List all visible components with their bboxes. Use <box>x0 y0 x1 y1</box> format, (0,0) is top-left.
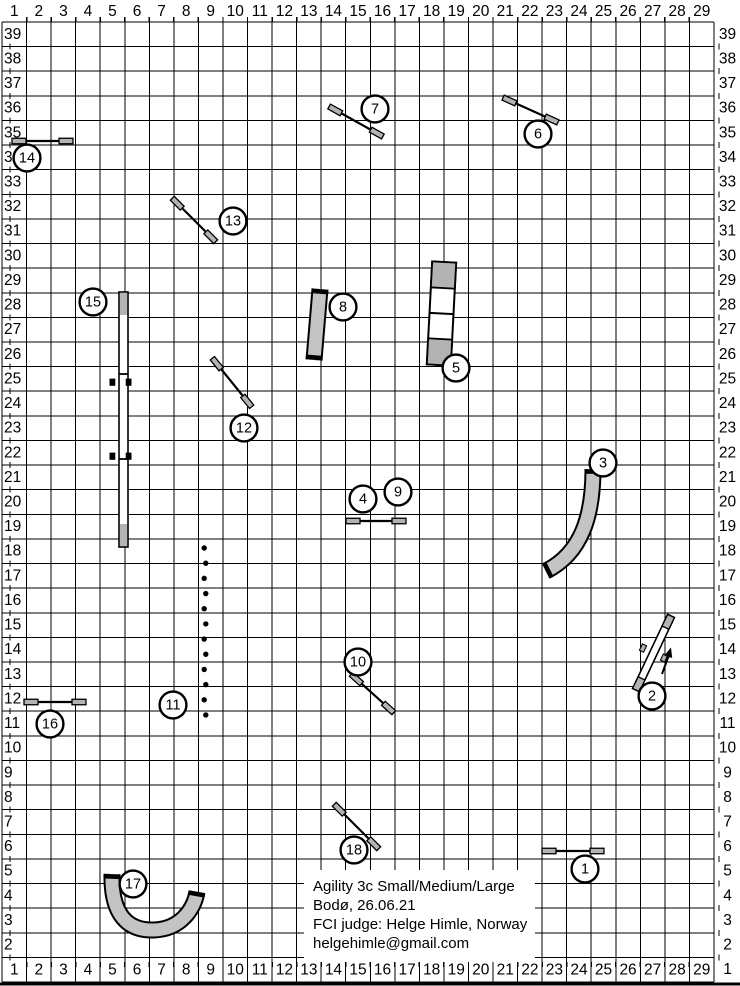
ruler-label: 1 <box>10 962 19 979</box>
weave-pole <box>203 652 208 657</box>
ruler-label: 20 <box>4 494 22 511</box>
obstacle-number-9: 9 <box>385 479 412 506</box>
ruler-label: 19 <box>448 3 465 20</box>
obstacle-number-1: 1 <box>572 856 599 883</box>
ruler-label: 30 <box>719 247 737 264</box>
ruler-label: 4 <box>723 887 732 904</box>
a-frame-apex <box>430 313 454 314</box>
ruler-label: 7 <box>4 814 13 831</box>
ruler-label: 31 <box>719 223 736 240</box>
ruler-label: 5 <box>4 863 13 880</box>
obstacle-jump-13 <box>170 196 217 243</box>
ruler-label: 3 <box>59 3 68 20</box>
ruler-label: 2 <box>35 3 44 20</box>
weave-pole <box>203 591 208 596</box>
obstacle-number-6: 6 <box>525 121 552 148</box>
obstacle-number-label: 1 <box>581 862 589 878</box>
obstacle-number-8: 8 <box>330 294 357 321</box>
ruler-label: 6 <box>4 838 13 855</box>
ruler-label: 29 <box>4 272 21 289</box>
ruler-label: 16 <box>374 3 391 20</box>
jump-wing <box>502 95 517 106</box>
ruler-label: 22 <box>4 444 21 461</box>
ruler-label: 24 <box>719 395 737 412</box>
obstacle-number-label: 13 <box>225 214 241 230</box>
obstacle-number-7: 7 <box>362 96 389 123</box>
ruler-label: 28 <box>719 297 736 314</box>
ruler-label: 17 <box>398 3 415 20</box>
ruler-label: 32 <box>4 198 21 215</box>
jump-wing <box>392 518 406 524</box>
ruler-label: 37 <box>4 75 21 92</box>
ruler-label: 16 <box>374 962 391 979</box>
ruler-label: 1 <box>10 3 19 20</box>
ruler-label: 10 <box>227 962 245 979</box>
jump-wing <box>170 196 184 210</box>
ruler-label: 7 <box>157 962 166 979</box>
weave-pole <box>203 682 208 687</box>
ruler-label: 20 <box>719 494 737 511</box>
ruler-label: 9 <box>206 962 215 979</box>
ruler-label: 29 <box>693 3 710 20</box>
dog-walk-contact-top <box>120 293 127 315</box>
ruler-label: 7 <box>157 3 166 20</box>
ruler-label: 22 <box>521 3 538 20</box>
info-line-event: Agility 3c Small/Medium/Large <box>313 877 535 896</box>
ruler-label: 24 <box>4 395 22 412</box>
ruler-label: 38 <box>719 50 736 67</box>
obstacle-tunnel-8 <box>306 289 329 361</box>
info-line-place-date: Bodø, 26.06.21 <box>313 896 535 915</box>
obstacle-number-3: 3 <box>590 450 617 477</box>
tunnel-body <box>314 289 320 360</box>
ruler-label: 8 <box>723 789 732 806</box>
jump-wing <box>382 701 396 714</box>
obstacle-number-13: 13 <box>220 208 247 235</box>
obstacle-number-label: 5 <box>452 361 460 377</box>
weave-pole <box>202 606 207 611</box>
ruler-label: 22 <box>719 444 736 461</box>
obstacle-dog-walk <box>110 292 132 547</box>
ruler-label: 13 <box>300 962 317 979</box>
ruler-label: 21 <box>497 962 514 979</box>
ruler-label: 27 <box>719 321 736 338</box>
ruler-label: 11 <box>252 3 268 20</box>
ruler-label: 25 <box>4 370 21 387</box>
obstacle-number-label: 18 <box>346 843 362 859</box>
ruler-label: 14 <box>325 3 343 20</box>
ruler-label: 6 <box>723 838 732 855</box>
ruler-label: 13 <box>4 666 21 683</box>
obstacle-number-label: 15 <box>85 295 101 311</box>
ruler-label: 21 <box>4 469 21 486</box>
obstacle-jump-10 <box>349 672 395 714</box>
a-frame-contact-top <box>431 261 456 288</box>
ruler-label: 6 <box>133 962 142 979</box>
jump-wing <box>590 848 604 854</box>
ruler-label: 37 <box>719 75 736 92</box>
ruler-label: 16 <box>719 592 736 609</box>
ruler-label: 29 <box>693 962 710 979</box>
jump-wing <box>59 138 73 144</box>
ruler-label: 27 <box>644 3 661 20</box>
ruler-label: 24 <box>570 962 588 979</box>
obstacle-number-label: 11 <box>165 698 180 714</box>
ruler-label: 2 <box>4 937 13 954</box>
obstacle-jump-1 <box>542 848 604 854</box>
jump-wing <box>210 356 223 370</box>
obstacle-number-label: 2 <box>648 689 656 705</box>
ruler-label: 21 <box>497 3 514 20</box>
ruler-label: 17 <box>398 962 415 979</box>
weave-pole <box>203 621 208 626</box>
ruler-label: 19 <box>448 962 465 979</box>
ruler-label: 18 <box>423 962 440 979</box>
obstacle-jump-4-9 <box>346 518 406 524</box>
ruler-label: 39 <box>4 26 21 43</box>
obstacle-number-label: 8 <box>339 300 347 316</box>
ruler-label: 8 <box>182 962 191 979</box>
obstacle-jump-14 <box>12 138 73 144</box>
ruler-label: 19 <box>4 518 21 535</box>
obstacle-number-label: 7 <box>371 102 379 118</box>
dog-walk-support <box>126 453 132 460</box>
course-info-box: Agility 3c Small/Medium/Large Bodø, 26.0… <box>304 870 535 962</box>
obstacle-number-label: 6 <box>534 127 542 143</box>
obstacle-number-label: 17 <box>125 877 141 893</box>
ruler-label: 13 <box>300 3 317 20</box>
obstacle-number-label: 4 <box>359 492 367 508</box>
ruler-label: 17 <box>4 567 21 584</box>
obstacle-number-4: 4 <box>350 486 377 513</box>
agility-course-map-page: 1122334455667788991010111112121313141415… <box>0 0 740 986</box>
ruler-label: 24 <box>570 3 588 20</box>
obstacle-number-label: 9 <box>394 485 402 501</box>
ruler-label: 8 <box>4 789 13 806</box>
ruler-label: 23 <box>4 420 21 437</box>
ruler-label: 18 <box>719 543 736 560</box>
ruler-label: 26 <box>4 346 21 363</box>
ruler-label: 29 <box>719 272 736 289</box>
ruler-label: 11 <box>719 715 735 732</box>
jump-wing <box>328 104 343 116</box>
jump-wing <box>346 518 360 524</box>
ruler-label: 27 <box>4 321 21 338</box>
obstacle-weave-poles <box>202 545 209 717</box>
ruler-label: 18 <box>4 543 21 560</box>
ruler-label: 3 <box>59 962 68 979</box>
jump-wing <box>204 230 218 244</box>
ruler-label: 23 <box>546 3 563 20</box>
ruler-label: 25 <box>595 962 612 979</box>
jump-wing <box>241 394 254 408</box>
ruler-label: 10 <box>4 740 22 757</box>
weave-pole <box>202 545 207 550</box>
ruler-label: 16 <box>4 592 21 609</box>
ruler-label: 15 <box>719 617 736 634</box>
ruler-label: 33 <box>4 174 21 191</box>
weave-pole <box>202 636 207 641</box>
ruler-label: 4 <box>4 887 13 904</box>
ruler-label: 15 <box>349 962 366 979</box>
ruler-label: 15 <box>4 617 21 634</box>
ruler-label: 12 <box>719 690 736 707</box>
ruler-label: 28 <box>669 3 686 20</box>
weave-pole <box>202 576 207 581</box>
obstacle-number-label: 14 <box>19 151 35 167</box>
ruler-label: 26 <box>719 346 736 363</box>
ruler-label: 2 <box>35 962 44 979</box>
ruler-label: 23 <box>719 420 736 437</box>
tunnel-end-cap <box>104 874 121 879</box>
ruler-label: 9 <box>723 764 732 781</box>
jump-wing <box>12 138 26 144</box>
ruler-label: 5 <box>108 962 117 979</box>
obstacle-number-5: 5 <box>443 355 470 382</box>
weave-pole <box>202 667 207 672</box>
ruler-label: 4 <box>84 3 93 20</box>
ruler-label: 12 <box>4 690 21 707</box>
ruler-label: 18 <box>423 3 440 20</box>
ruler-label: 21 <box>719 469 736 486</box>
jump-wing <box>542 848 556 854</box>
obstacle-jump-16 <box>24 699 86 705</box>
ruler-label: 11 <box>252 962 268 979</box>
obstacle-number-16: 16 <box>37 711 64 738</box>
jump-wing <box>72 699 86 705</box>
dog-walk-plank <box>119 292 128 547</box>
obstacle-number-label: 3 <box>599 456 607 472</box>
ruler-label: 3 <box>4 912 13 929</box>
ruler-label: 31 <box>4 223 21 240</box>
obstacle-number-14: 14 <box>14 145 41 172</box>
ruler-label: 28 <box>669 962 686 979</box>
ruler-label: 17 <box>719 567 736 584</box>
weave-pole <box>203 712 208 717</box>
ruler-label: 14 <box>325 962 343 979</box>
course-map-svg: 1122334455667788991010111112121313141415… <box>0 0 740 986</box>
ruler-label: 5 <box>723 863 732 880</box>
ruler-label: 33 <box>719 174 736 191</box>
ruler-label: 11 <box>4 715 20 732</box>
ruler-label: 5 <box>108 3 117 20</box>
ruler-label: 22 <box>521 962 538 979</box>
obstacle-number-18: 18 <box>341 837 368 864</box>
ruler-label: 34 <box>719 149 737 166</box>
ruler-label: 13 <box>719 666 736 683</box>
ruler-label: 9 <box>206 3 215 20</box>
jump-wing <box>24 699 38 705</box>
obstacle-number-17: 17 <box>120 871 147 898</box>
obstacle-number-11: 11 <box>160 692 187 719</box>
ruler-label: 8 <box>182 3 191 20</box>
dog-walk-support <box>110 453 116 460</box>
ruler-label: 36 <box>4 100 21 117</box>
dog-walk-support <box>126 379 132 386</box>
obstacle-number-label: 12 <box>236 421 252 437</box>
obstacle-number-label: 10 <box>350 655 366 671</box>
weave-pole <box>202 697 207 702</box>
ruler-label: 6 <box>133 3 142 20</box>
ruler-label: 35 <box>719 124 736 141</box>
ruler-label: 1 <box>723 961 732 978</box>
ruler-label: 38 <box>4 50 21 67</box>
obstacle-number-12: 12 <box>231 415 258 442</box>
ruler-label: 32 <box>719 198 736 215</box>
ruler-label: 14 <box>719 641 737 658</box>
ruler-label: 26 <box>619 962 636 979</box>
obstacle-number-10: 10 <box>345 649 372 676</box>
dog-walk-contact-bottom <box>120 524 127 546</box>
ruler-label: 9 <box>4 764 13 781</box>
ruler-label: 10 <box>719 740 737 757</box>
jump-wing <box>367 837 381 851</box>
weave-pole <box>203 560 208 565</box>
obstacle-number-15: 15 <box>80 289 107 316</box>
info-line-email: helgehimle@gmail.com <box>313 934 535 953</box>
ruler-label: 39 <box>719 26 736 43</box>
dog-walk-support <box>110 379 116 386</box>
ruler-label: 4 <box>84 962 93 979</box>
ruler-label: 15 <box>349 3 366 20</box>
ruler-label: 36 <box>719 100 736 117</box>
ruler-label: 28 <box>4 297 21 314</box>
ruler-label: 19 <box>719 518 736 535</box>
ruler-label: 30 <box>4 247 22 264</box>
ruler-label: 20 <box>472 962 490 979</box>
ruler-label: 25 <box>719 370 736 387</box>
ruler-label: 2 <box>723 937 732 954</box>
info-line-judge: FCI judge: Helge Himle, Norway <box>313 915 535 934</box>
ruler-label: 7 <box>723 814 732 831</box>
ruler-label: 10 <box>227 3 245 20</box>
ruler-label: 25 <box>595 3 612 20</box>
ruler-label: 12 <box>276 3 293 20</box>
obstacle-tunnel-3 <box>542 469 601 579</box>
ruler-label: 27 <box>644 962 661 979</box>
ruler-label: 26 <box>619 3 636 20</box>
ruler-label: 23 <box>546 962 563 979</box>
ruler-label: 14 <box>4 641 22 658</box>
ruler-label: 3 <box>723 912 732 929</box>
obstacle-number-label: 16 <box>42 717 58 733</box>
obstacle-a-frame <box>427 261 456 365</box>
ruler-label: 20 <box>472 3 490 20</box>
obstacle-number-2: 2 <box>639 683 666 710</box>
jump-wing <box>369 127 384 139</box>
seesaw-contact <box>662 614 674 629</box>
ruler-label: 12 <box>276 962 293 979</box>
